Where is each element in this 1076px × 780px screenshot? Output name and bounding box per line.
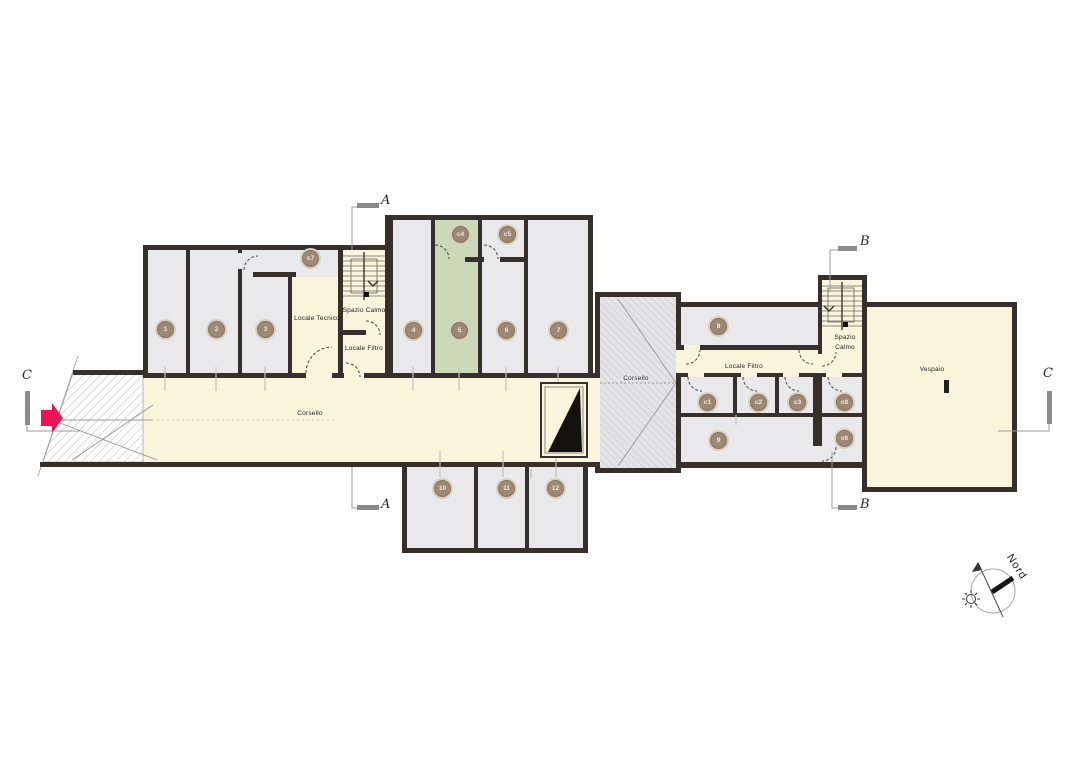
corridor-lift <box>541 383 587 457</box>
room-badge-c7: c7 <box>302 250 319 267</box>
room-badge-c3: c3 <box>789 394 806 411</box>
room-badge-2: 2 <box>208 321 225 338</box>
sun-icon <box>962 590 980 608</box>
section-letter-a-bottom: A <box>381 497 390 512</box>
room-badge-c2: c2 <box>750 394 767 411</box>
floor-plan-linework <box>0 0 1076 780</box>
room-badge-9: 9 <box>710 432 727 449</box>
room-badge-c6: c6 <box>836 430 853 447</box>
room-badge-5: 5 <box>451 322 468 339</box>
label-vespaio: Vespaio <box>902 365 962 374</box>
room-badge-11: 11 <box>498 480 515 497</box>
label-corsello-mid: Corsello <box>606 374 666 383</box>
label-locale-filtro-right: Locale Filtro <box>714 362 774 371</box>
floor-plan-canvas: Corsello Corsello Locale Tecnico Spazio … <box>0 0 1076 780</box>
room-badge-c4: c4 <box>452 226 469 243</box>
section-letter-c-right: C <box>1043 366 1053 381</box>
label-corsello-main: Corsello <box>280 409 340 418</box>
room-badge-8: 8 <box>710 318 727 335</box>
room-badge-12: 12 <box>547 480 564 497</box>
room-badge-c5: c5 <box>499 226 516 243</box>
section-letter-b-top: B <box>860 234 870 249</box>
label-locale-filtro-left: Locale Filtro <box>338 344 390 353</box>
north-compass <box>962 562 1015 617</box>
room-badge-7: 7 <box>550 322 567 339</box>
room-badge-6: 6 <box>498 322 515 339</box>
section-letter-b-bottom: B <box>860 497 870 512</box>
label-locale-tecnico: Locale Tecnico <box>280 314 354 323</box>
section-letter-a-top: A <box>381 193 390 208</box>
label-spazio-calmo-right: Spazio Calmo <box>826 333 864 353</box>
label-spazio-calmo-left: Spazio Calmo <box>338 306 390 315</box>
room-badge-1: 1 <box>157 321 174 338</box>
room-badge-4: 4 <box>405 322 422 339</box>
vespaio-marker <box>944 380 949 393</box>
section-letter-c-left: C <box>22 368 32 383</box>
room-badge-c8: c8 <box>836 394 853 411</box>
room-badge-10: 10 <box>434 480 451 497</box>
room-badge-c1: c1 <box>699 394 716 411</box>
room-badge-3: 3 <box>257 321 274 338</box>
